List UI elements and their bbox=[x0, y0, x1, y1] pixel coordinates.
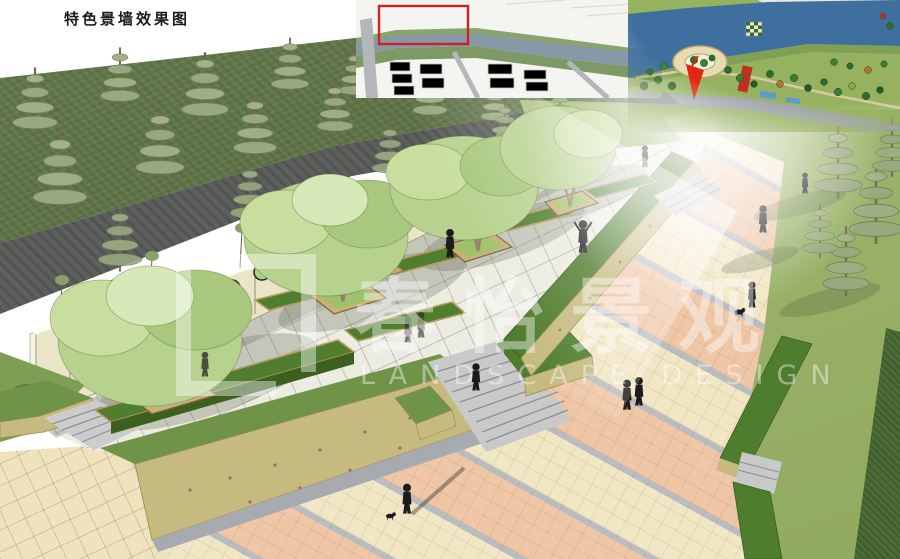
presentation-board: 春怡景观 LANDSCAPE DESIGN 特色景墙效果图 bbox=[0, 0, 900, 559]
checkerboard-garden bbox=[746, 22, 762, 36]
lawn-conifer-trees bbox=[719, 117, 900, 324]
ramp-side-hedges bbox=[716, 336, 812, 559]
detail-plan-inset bbox=[628, 0, 900, 132]
page-title: 特色景墙效果图 bbox=[64, 8, 190, 29]
site-plan-inset bbox=[356, 0, 662, 98]
